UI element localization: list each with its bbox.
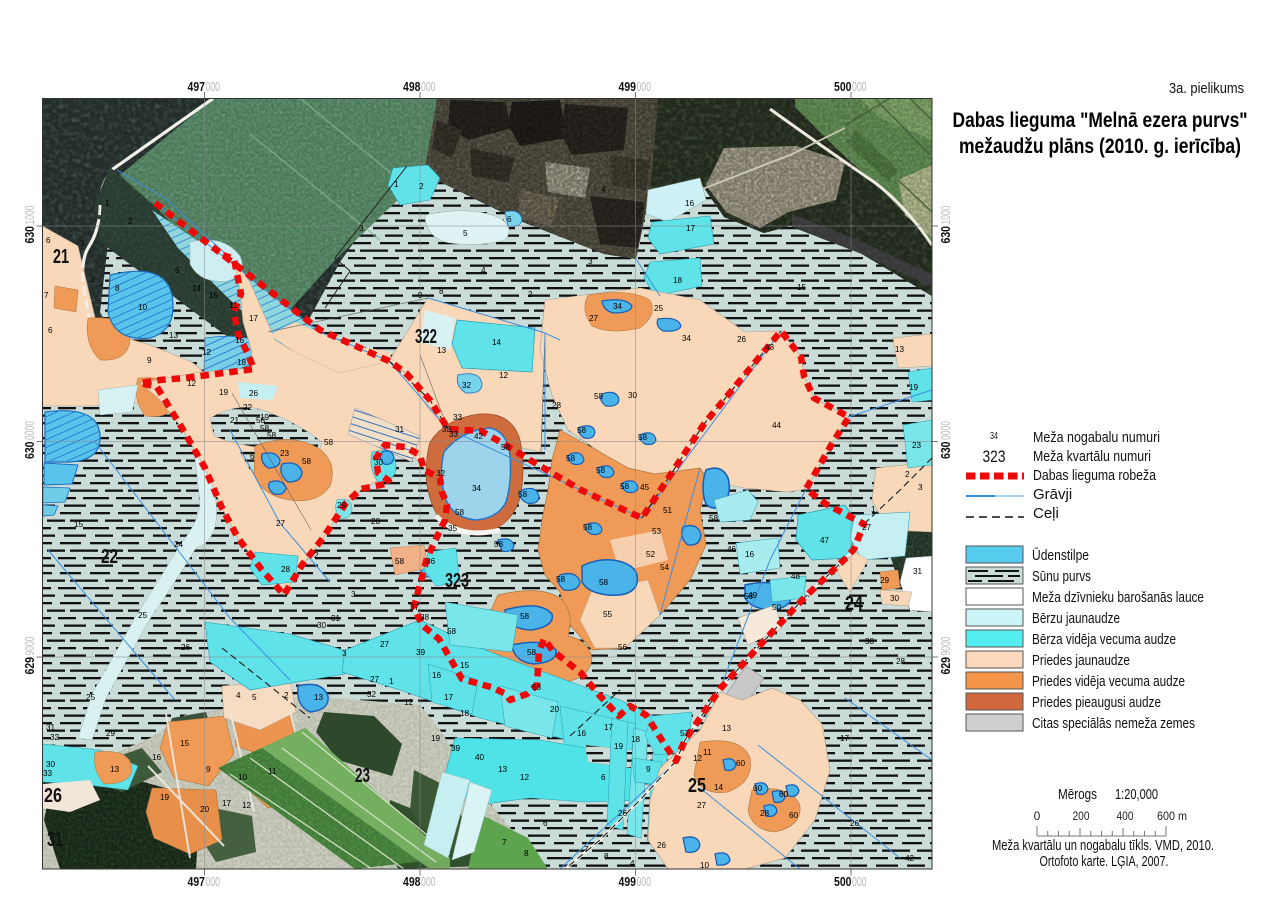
svg-text:23: 23 bbox=[355, 765, 370, 787]
svg-text:47: 47 bbox=[820, 536, 830, 545]
svg-text:15: 15 bbox=[797, 283, 807, 292]
svg-text:57: 57 bbox=[680, 729, 690, 738]
svg-text:323: 323 bbox=[983, 447, 1006, 466]
svg-text:26: 26 bbox=[44, 785, 62, 807]
svg-text:11: 11 bbox=[229, 301, 238, 310]
svg-text:1: 1 bbox=[871, 505, 876, 514]
svg-text:Ūdenstilpe: Ūdenstilpe bbox=[1032, 547, 1089, 564]
svg-text:33: 33 bbox=[453, 413, 463, 422]
svg-text:630: 630 bbox=[23, 441, 37, 459]
svg-text:30: 30 bbox=[628, 391, 638, 400]
svg-text:51: 51 bbox=[663, 506, 673, 515]
svg-text:58: 58 bbox=[324, 438, 334, 447]
svg-text:19: 19 bbox=[431, 734, 441, 743]
svg-text:13: 13 bbox=[314, 693, 324, 702]
svg-text:6: 6 bbox=[48, 326, 53, 335]
svg-text:16: 16 bbox=[235, 336, 245, 345]
svg-text:15: 15 bbox=[460, 661, 470, 670]
svg-text:31: 31 bbox=[913, 567, 923, 576]
svg-text:14: 14 bbox=[192, 284, 202, 293]
svg-text:13: 13 bbox=[722, 724, 732, 733]
svg-text:Meža kvartālu numuri: Meža kvartālu numuri bbox=[1033, 448, 1151, 465]
svg-text:58: 58 bbox=[520, 612, 530, 621]
svg-text:4: 4 bbox=[601, 185, 606, 194]
svg-text:6: 6 bbox=[507, 215, 512, 224]
svg-text:16: 16 bbox=[577, 729, 587, 738]
svg-text:Bērza vidēja vecuma audze: Bērza vidēja vecuma audze bbox=[1032, 631, 1176, 648]
svg-text:26: 26 bbox=[181, 643, 191, 652]
svg-text:27: 27 bbox=[589, 314, 599, 323]
svg-text:17: 17 bbox=[840, 734, 850, 743]
svg-text:12: 12 bbox=[242, 801, 252, 810]
svg-text:0: 0 bbox=[1034, 809, 1041, 823]
svg-text:58: 58 bbox=[709, 514, 719, 523]
svg-text:Bērzu jaunaudze: Bērzu jaunaudze bbox=[1032, 610, 1120, 627]
svg-text:45: 45 bbox=[640, 483, 650, 492]
svg-text:Mērogs: Mērogs bbox=[1058, 786, 1097, 803]
svg-text:28: 28 bbox=[552, 401, 562, 410]
svg-text:31: 31 bbox=[47, 829, 63, 851]
svg-text:22: 22 bbox=[101, 546, 118, 568]
svg-text:54: 54 bbox=[660, 563, 670, 572]
svg-text:34: 34 bbox=[990, 431, 998, 442]
svg-text:3: 3 bbox=[359, 224, 364, 233]
svg-text:000: 000 bbox=[637, 875, 652, 889]
svg-text:58: 58 bbox=[527, 648, 537, 657]
svg-text:500: 500 bbox=[834, 875, 852, 889]
svg-text:Priedes vidēja vecuma audze: Priedes vidēja vecuma audze bbox=[1032, 673, 1185, 690]
svg-text:15: 15 bbox=[180, 739, 190, 748]
svg-text:48: 48 bbox=[791, 572, 801, 581]
svg-text:21: 21 bbox=[53, 246, 69, 268]
svg-text:3: 3 bbox=[342, 649, 347, 658]
svg-text:60: 60 bbox=[789, 811, 799, 820]
svg-text:30: 30 bbox=[46, 760, 56, 769]
svg-text:49: 49 bbox=[748, 591, 758, 600]
svg-text:24: 24 bbox=[174, 540, 184, 549]
svg-text:27: 27 bbox=[276, 519, 286, 528]
svg-text:58: 58 bbox=[395, 557, 405, 566]
svg-text:000: 000 bbox=[637, 80, 652, 94]
svg-text:Citas speciālās nemeža zemes: Citas speciālās nemeža zemes bbox=[1032, 715, 1195, 732]
svg-text:Meža dzīvnieku barošanās lauce: Meža dzīvnieku barošanās lauce bbox=[1032, 589, 1204, 606]
svg-text:27: 27 bbox=[862, 523, 872, 532]
svg-text:44: 44 bbox=[772, 421, 782, 430]
svg-text:4: 4 bbox=[236, 691, 241, 700]
svg-text:26: 26 bbox=[850, 819, 860, 828]
svg-text:400: 400 bbox=[1117, 809, 1134, 823]
svg-text:8: 8 bbox=[439, 287, 444, 296]
svg-text:31: 31 bbox=[395, 425, 405, 434]
svg-text:58: 58 bbox=[620, 482, 630, 491]
svg-text:13: 13 bbox=[110, 765, 120, 774]
svg-text:39: 39 bbox=[416, 648, 426, 657]
svg-text:000: 000 bbox=[852, 80, 867, 94]
svg-text:31: 31 bbox=[331, 614, 341, 623]
svg-text:58: 58 bbox=[267, 431, 277, 440]
svg-text:000: 000 bbox=[421, 875, 436, 889]
svg-text:7: 7 bbox=[44, 291, 49, 300]
svg-text:25: 25 bbox=[688, 775, 706, 797]
svg-text:46: 46 bbox=[727, 545, 737, 554]
svg-text:322: 322 bbox=[415, 326, 437, 348]
svg-text:1: 1 bbox=[389, 677, 394, 686]
svg-text:30: 30 bbox=[317, 621, 327, 630]
svg-text:1:20,000: 1:20,000 bbox=[1115, 786, 1158, 803]
svg-text:3: 3 bbox=[588, 257, 593, 266]
svg-text:20: 20 bbox=[371, 517, 381, 526]
svg-text:18: 18 bbox=[631, 735, 641, 744]
svg-text:18: 18 bbox=[460, 709, 470, 718]
svg-text:16: 16 bbox=[745, 550, 755, 559]
svg-text:8: 8 bbox=[604, 852, 609, 861]
svg-text:5: 5 bbox=[175, 266, 180, 275]
svg-text:39: 39 bbox=[451, 744, 461, 753]
svg-text:29: 29 bbox=[106, 729, 116, 738]
svg-text:323: 323 bbox=[445, 570, 469, 592]
svg-text:14: 14 bbox=[492, 338, 502, 347]
svg-text:58: 58 bbox=[518, 490, 528, 499]
svg-text:15: 15 bbox=[74, 520, 84, 529]
svg-text:9: 9 bbox=[418, 291, 423, 300]
svg-text:4: 4 bbox=[90, 276, 95, 285]
svg-text:498: 498 bbox=[403, 875, 421, 889]
svg-text:2: 2 bbox=[905, 470, 910, 479]
svg-text:3: 3 bbox=[80, 239, 85, 248]
svg-text:26: 26 bbox=[737, 335, 747, 344]
svg-text:20: 20 bbox=[550, 705, 560, 714]
svg-text:23: 23 bbox=[912, 441, 922, 450]
svg-text:58: 58 bbox=[501, 443, 511, 452]
svg-text:58: 58 bbox=[596, 466, 606, 475]
svg-text:52: 52 bbox=[646, 550, 656, 559]
svg-text:497: 497 bbox=[188, 80, 206, 94]
svg-text:000: 000 bbox=[421, 80, 436, 94]
svg-text:25: 25 bbox=[138, 611, 148, 620]
svg-text:16: 16 bbox=[152, 753, 162, 762]
svg-text:12: 12 bbox=[187, 379, 197, 388]
svg-text:25: 25 bbox=[654, 304, 664, 313]
svg-text:9000: 9000 bbox=[939, 636, 953, 655]
svg-text:58: 58 bbox=[556, 575, 566, 584]
svg-text:17: 17 bbox=[222, 799, 232, 808]
svg-text:33: 33 bbox=[442, 425, 452, 434]
svg-text:Meža kvartālu un nogabalu tīkl: Meža kvartālu un nogabalu tīkls. VMD, 20… bbox=[992, 837, 1214, 854]
svg-text:4: 4 bbox=[481, 266, 486, 275]
svg-text:2: 2 bbox=[528, 290, 533, 299]
svg-text:30: 30 bbox=[374, 458, 384, 467]
svg-text:2: 2 bbox=[419, 182, 424, 191]
svg-text:26: 26 bbox=[618, 809, 628, 818]
svg-text:Grāvji: Grāvji bbox=[1033, 486, 1072, 503]
svg-text:13: 13 bbox=[437, 346, 447, 355]
svg-text:35: 35 bbox=[448, 524, 458, 533]
svg-text:500: 500 bbox=[834, 80, 852, 94]
svg-text:33: 33 bbox=[43, 769, 53, 778]
svg-text:3: 3 bbox=[918, 483, 923, 492]
svg-text:15: 15 bbox=[209, 291, 219, 300]
svg-text:Priedes jaunaudze: Priedes jaunaudze bbox=[1032, 652, 1130, 669]
svg-text:58: 58 bbox=[566, 454, 576, 463]
svg-text:58: 58 bbox=[455, 508, 465, 517]
svg-text:9000: 9000 bbox=[23, 636, 37, 655]
svg-text:12: 12 bbox=[693, 754, 703, 763]
svg-text:10: 10 bbox=[238, 773, 248, 782]
svg-text:58: 58 bbox=[494, 540, 504, 549]
svg-text:18: 18 bbox=[673, 276, 683, 285]
svg-text:28: 28 bbox=[281, 565, 291, 574]
svg-text:14: 14 bbox=[714, 783, 724, 792]
svg-text:42: 42 bbox=[474, 432, 484, 441]
svg-text:Meža nogabalu numuri: Meža nogabalu numuri bbox=[1033, 429, 1160, 446]
svg-text:629: 629 bbox=[23, 657, 37, 675]
svg-text:20: 20 bbox=[200, 805, 210, 814]
svg-text:37: 37 bbox=[410, 603, 420, 612]
svg-text:31: 31 bbox=[46, 723, 56, 732]
svg-text:25: 25 bbox=[86, 693, 96, 702]
svg-text:497: 497 bbox=[188, 875, 206, 889]
svg-text:1000: 1000 bbox=[23, 205, 37, 224]
svg-text:34: 34 bbox=[682, 334, 692, 343]
svg-text:58: 58 bbox=[302, 457, 312, 466]
svg-text:32: 32 bbox=[462, 381, 472, 390]
svg-text:32: 32 bbox=[50, 733, 60, 742]
svg-text:000: 000 bbox=[852, 875, 867, 889]
svg-text:2: 2 bbox=[128, 217, 133, 226]
svg-text:Ceļi: Ceļi bbox=[1033, 505, 1059, 522]
svg-text:7: 7 bbox=[502, 838, 507, 847]
svg-text:1000: 1000 bbox=[939, 205, 953, 224]
svg-text:Ortofoto karte. LĢIA, 2007.: Ortofoto karte. LĢIA, 2007. bbox=[1040, 853, 1169, 870]
svg-text:2: 2 bbox=[284, 691, 289, 700]
svg-text:12: 12 bbox=[499, 371, 509, 380]
svg-text:630: 630 bbox=[939, 226, 953, 244]
svg-text:12: 12 bbox=[404, 698, 414, 707]
svg-text:34: 34 bbox=[613, 302, 623, 311]
svg-text:11: 11 bbox=[703, 748, 712, 757]
svg-text:34: 34 bbox=[472, 484, 482, 493]
svg-text:60: 60 bbox=[753, 784, 763, 793]
svg-text:499: 499 bbox=[619, 875, 637, 889]
svg-text:19: 19 bbox=[614, 742, 624, 751]
svg-text:30: 30 bbox=[890, 594, 900, 603]
svg-text:60: 60 bbox=[736, 759, 746, 768]
svg-text:6: 6 bbox=[543, 819, 548, 828]
svg-text:Priedes pieaugusi audze: Priedes pieaugusi audze bbox=[1032, 694, 1161, 711]
svg-text:21: 21 bbox=[230, 416, 240, 425]
svg-text:19: 19 bbox=[909, 383, 919, 392]
svg-text:38: 38 bbox=[865, 637, 875, 646]
svg-text:5: 5 bbox=[463, 229, 468, 238]
svg-text:6: 6 bbox=[601, 773, 606, 782]
svg-text:56: 56 bbox=[618, 643, 628, 652]
svg-text:5: 5 bbox=[252, 693, 257, 702]
svg-text:13: 13 bbox=[895, 345, 905, 354]
svg-text:43: 43 bbox=[765, 343, 775, 352]
svg-text:12: 12 bbox=[202, 348, 212, 357]
svg-text:58: 58 bbox=[599, 578, 609, 587]
svg-text:40: 40 bbox=[475, 753, 485, 762]
svg-text:28: 28 bbox=[896, 657, 906, 666]
svg-text:600 m: 600 m bbox=[1157, 809, 1187, 823]
svg-text:28: 28 bbox=[760, 809, 770, 818]
svg-text:36: 36 bbox=[426, 557, 436, 566]
svg-text:8: 8 bbox=[524, 849, 529, 858]
svg-text:9: 9 bbox=[206, 765, 211, 774]
svg-text:58: 58 bbox=[583, 523, 593, 532]
svg-text:58: 58 bbox=[594, 392, 604, 401]
svg-text:53: 53 bbox=[652, 527, 662, 536]
svg-text:22: 22 bbox=[243, 403, 253, 412]
svg-text:17: 17 bbox=[249, 314, 259, 323]
svg-text:26: 26 bbox=[657, 841, 667, 850]
svg-text:2: 2 bbox=[314, 551, 319, 560]
svg-text:50: 50 bbox=[772, 603, 782, 612]
svg-text:8: 8 bbox=[115, 284, 120, 293]
svg-text:58: 58 bbox=[638, 433, 648, 442]
svg-text:26: 26 bbox=[249, 389, 259, 398]
svg-text:7: 7 bbox=[584, 845, 589, 854]
svg-text:32: 32 bbox=[367, 690, 377, 699]
svg-text:42: 42 bbox=[905, 854, 915, 863]
svg-text:6: 6 bbox=[250, 452, 255, 461]
svg-text:mežaudžu plāns (2010. g. ierīc: mežaudžu plāns (2010. g. ierīcība) bbox=[959, 135, 1241, 158]
svg-text:16: 16 bbox=[432, 671, 442, 680]
svg-text:Dabas lieguma robeža: Dabas lieguma robeža bbox=[1033, 467, 1157, 484]
svg-text:58: 58 bbox=[447, 627, 457, 636]
svg-text:1: 1 bbox=[105, 199, 110, 208]
svg-text:11: 11 bbox=[268, 767, 277, 776]
svg-text:1: 1 bbox=[394, 180, 399, 189]
svg-text:000: 000 bbox=[206, 80, 221, 94]
svg-text:629: 629 bbox=[939, 657, 953, 675]
svg-text:19: 19 bbox=[219, 388, 229, 397]
svg-text:12: 12 bbox=[520, 773, 530, 782]
svg-text:200: 200 bbox=[1073, 809, 1090, 823]
svg-text:0000: 0000 bbox=[939, 421, 953, 440]
svg-text:27: 27 bbox=[380, 640, 390, 649]
svg-text:Dabas lieguma "Melnā ezera pur: Dabas lieguma "Melnā ezera purvs" bbox=[953, 109, 1248, 132]
svg-text:29: 29 bbox=[880, 576, 890, 585]
svg-text:10: 10 bbox=[138, 303, 148, 312]
svg-text:55: 55 bbox=[603, 610, 613, 619]
svg-text:17: 17 bbox=[604, 723, 614, 732]
svg-text:13: 13 bbox=[169, 331, 179, 340]
svg-text:3: 3 bbox=[351, 590, 356, 599]
svg-text:630: 630 bbox=[23, 226, 37, 244]
svg-text:630: 630 bbox=[939, 441, 953, 459]
svg-text:17: 17 bbox=[444, 693, 454, 702]
svg-text:0000: 0000 bbox=[23, 421, 37, 440]
svg-text:6: 6 bbox=[46, 236, 51, 245]
svg-text:27: 27 bbox=[697, 801, 707, 810]
svg-text:19: 19 bbox=[160, 793, 170, 802]
svg-text:17: 17 bbox=[686, 224, 696, 233]
svg-text:499: 499 bbox=[619, 80, 637, 94]
svg-text:9: 9 bbox=[147, 356, 152, 365]
svg-text:9: 9 bbox=[646, 765, 651, 774]
svg-text:60: 60 bbox=[779, 790, 789, 799]
svg-text:29: 29 bbox=[337, 501, 347, 510]
svg-text:13: 13 bbox=[498, 765, 508, 774]
svg-text:24: 24 bbox=[845, 593, 864, 615]
svg-text:58: 58 bbox=[532, 683, 542, 692]
svg-text:23: 23 bbox=[280, 449, 290, 458]
svg-text:32: 32 bbox=[436, 469, 446, 478]
svg-text:58: 58 bbox=[577, 426, 587, 435]
svg-text:38: 38 bbox=[420, 613, 430, 622]
svg-text:000: 000 bbox=[206, 875, 221, 889]
svg-text:498: 498 bbox=[403, 80, 421, 94]
svg-text:16: 16 bbox=[685, 199, 695, 208]
svg-text:3a. pielikums: 3a. pielikums bbox=[1169, 80, 1244, 97]
svg-text:4: 4 bbox=[630, 859, 635, 868]
svg-text:27: 27 bbox=[370, 675, 380, 684]
svg-text:18: 18 bbox=[237, 358, 247, 367]
svg-text:Sūnu purvs: Sūnu purvs bbox=[1032, 568, 1091, 585]
